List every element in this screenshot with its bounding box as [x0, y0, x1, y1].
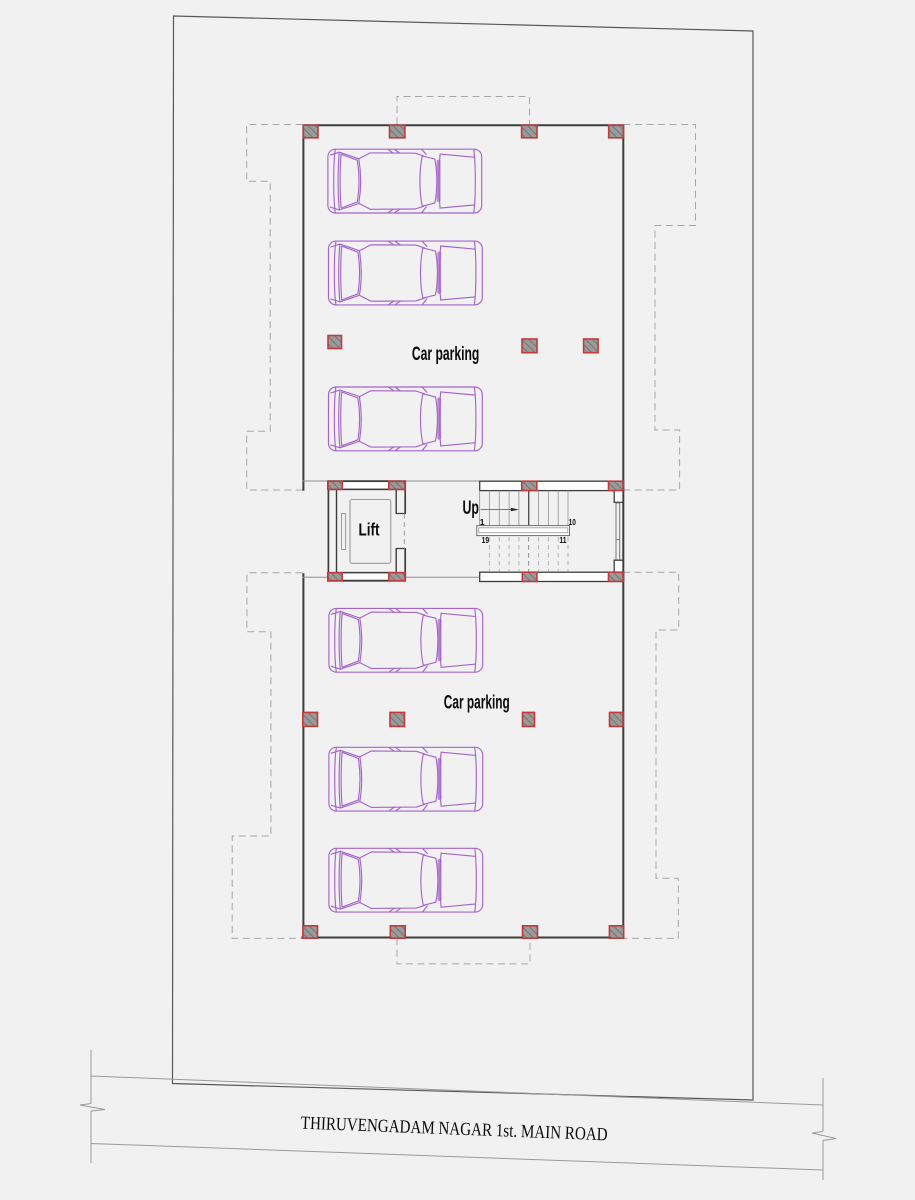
- svg-text:Up: Up: [463, 497, 480, 519]
- svg-text:Car parking: Car parking: [444, 693, 510, 714]
- svg-text:10: 10: [569, 517, 576, 527]
- svg-text:1: 1: [480, 517, 485, 527]
- svg-text:Car parking: Car parking: [412, 344, 480, 365]
- svg-text:19: 19: [482, 535, 490, 545]
- svg-text:11: 11: [559, 535, 566, 545]
- svg-text:Lift: Lift: [359, 520, 380, 540]
- svg-text:THIRUVENGADAM NAGAR 1st. MAIN: THIRUVENGADAM NAGAR 1st. MAIN ROAD: [300, 1114, 608, 1146]
